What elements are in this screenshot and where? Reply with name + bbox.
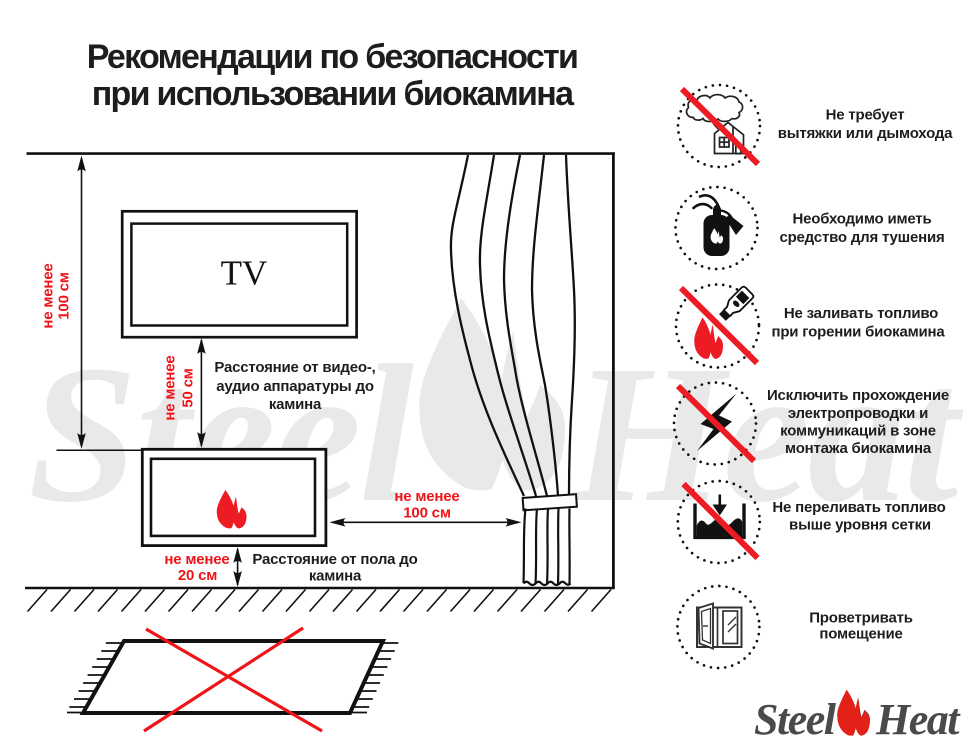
svg-text:вытяжки или дымохода: вытяжки или дымохода [778, 125, 953, 142]
svg-text:при горении биокамина: при горении биокамина [771, 324, 945, 341]
svg-text:Расстояние от видео-,: Расстояние от видео-, [214, 359, 375, 376]
svg-text:Проветривать: Проветривать [809, 609, 913, 626]
svg-text:электропроводки и: электропроводки и [788, 405, 928, 422]
svg-text:не менее: не менее [394, 488, 459, 505]
svg-text:не менее: не менее [162, 355, 179, 420]
svg-text:камина: камина [309, 568, 362, 585]
svg-text:коммуникаций в зоне: коммуникаций в зоне [780, 423, 936, 440]
svg-text:не менее: не менее [40, 263, 57, 328]
svg-text:монтажа биокамина: монтажа биокамина [785, 440, 932, 457]
svg-text:50 см: 50 см [180, 368, 197, 407]
svg-text:Необходимо иметь: Необходимо иметь [793, 211, 932, 228]
svg-text:Исключить прохождение: Исключить прохождение [767, 387, 949, 404]
svg-text:не менее: не менее [164, 551, 229, 568]
svg-text:100 см: 100 см [403, 505, 451, 522]
svg-text:выше уровня сетки: выше уровня сетки [789, 517, 931, 534]
svg-text:при использовании биокамина: при использовании биокамина [92, 75, 575, 113]
svg-text:средство для тушения: средство для тушения [779, 229, 944, 246]
svg-text:Расстояние от пола до: Расстояние от пола до [252, 551, 417, 568]
svg-text:TV: TV [221, 253, 268, 292]
svg-text:Не требует: Не требует [826, 107, 905, 124]
svg-text:Рекомендации по безопасности: Рекомендации по безопасности [87, 38, 577, 76]
svg-text:Не заливать топливо: Не заливать топливо [784, 305, 938, 322]
svg-text:помещение: помещение [819, 626, 902, 643]
svg-text:20 см: 20 см [178, 567, 217, 584]
svg-text:Не переливать топливо: Не переливать топливо [772, 499, 945, 516]
svg-text:аудио аппаратуры до: аудио аппаратуры до [216, 378, 374, 395]
svg-text:камина: камина [269, 396, 322, 413]
svg-text:100 см: 100 см [56, 272, 73, 320]
